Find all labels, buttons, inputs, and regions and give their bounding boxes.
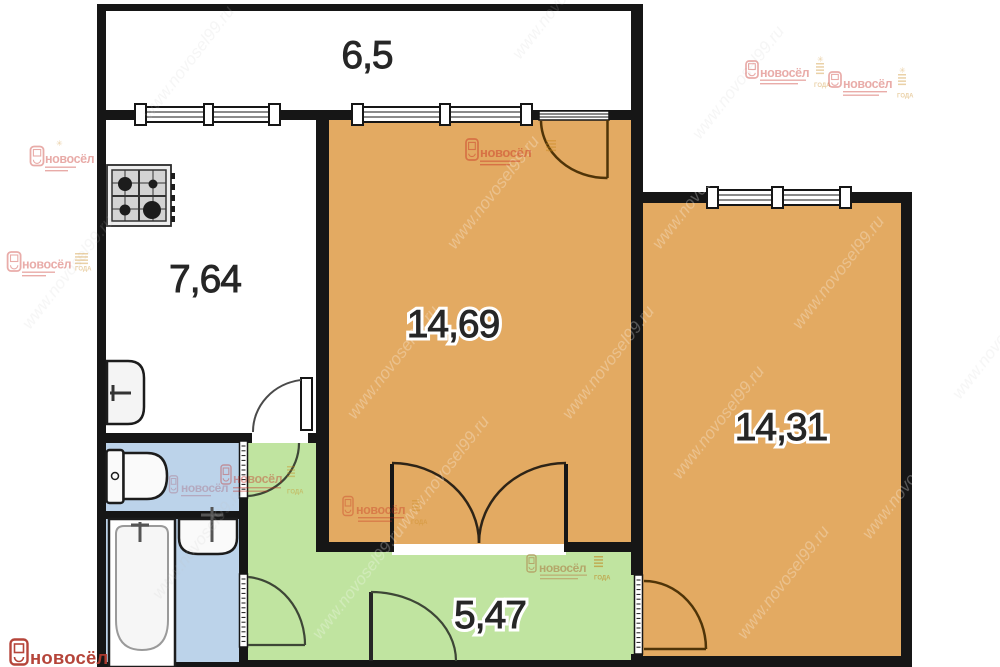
svg-text:новосёл: новосёл xyxy=(22,258,72,272)
svg-text:новосёл: новосёл xyxy=(843,77,893,91)
svg-text:ГОДА: ГОДА xyxy=(75,267,92,273)
svg-text:6,5: 6,5 xyxy=(341,34,393,77)
svg-text:ГОДА: ГОДА xyxy=(897,94,914,100)
svg-text:новосёл: новосёл xyxy=(539,561,586,575)
svg-text:новосёл: новосёл xyxy=(356,503,406,517)
svg-text:новосёл: новосёл xyxy=(233,472,283,486)
svg-text:5,47: 5,47 xyxy=(454,594,526,637)
svg-text:ГОДА: ГОДА xyxy=(411,520,428,526)
svg-text:новосёл: новосёл xyxy=(30,647,108,667)
svg-text:14,31: 14,31 xyxy=(735,406,828,449)
svg-text:7,64: 7,64 xyxy=(169,258,241,301)
svg-text:ГОДА: ГОДА xyxy=(594,576,611,582)
svg-text:✳: ✳ xyxy=(547,146,554,155)
svg-text:ГОДА: ГОДА xyxy=(287,490,304,496)
svg-text:новосёл: новосёл xyxy=(480,145,531,160)
svg-text:новосёл: новосёл xyxy=(760,66,810,80)
svg-text:✳: ✳ xyxy=(899,66,906,75)
svg-text:✳: ✳ xyxy=(817,55,824,64)
svg-text:новосёл: новосёл xyxy=(45,152,95,166)
svg-text:✳: ✳ xyxy=(56,139,63,148)
svg-text:14,69: 14,69 xyxy=(407,303,500,346)
